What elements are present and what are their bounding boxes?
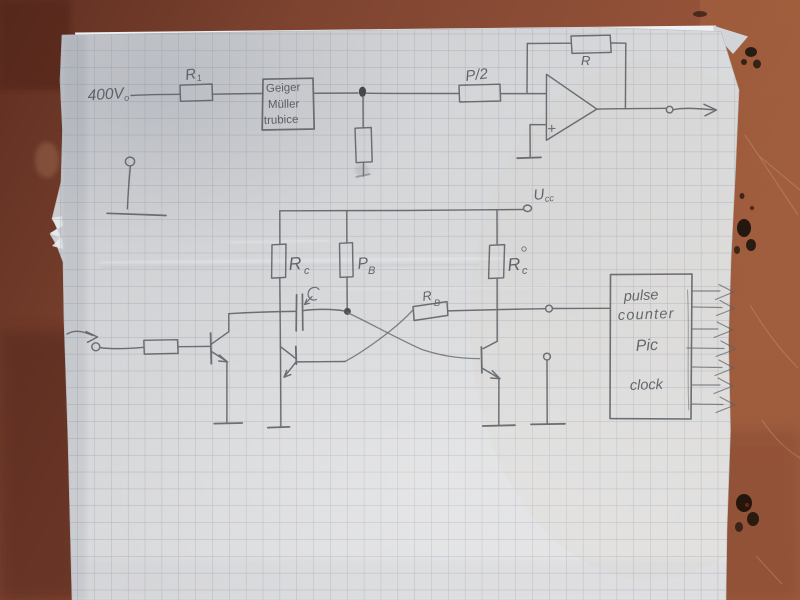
svg-text:B: B bbox=[434, 298, 440, 308]
svg-text:Müller: Müller bbox=[268, 98, 300, 111]
svg-text:pulse: pulse bbox=[622, 287, 658, 305]
svg-text:Pic: Pic bbox=[635, 337, 658, 355]
svg-text:P/2: P/2 bbox=[464, 65, 489, 85]
svg-text:c: c bbox=[522, 265, 528, 277]
svg-text:clock: clock bbox=[630, 377, 664, 394]
svg-text:B: B bbox=[368, 265, 375, 277]
svg-text:trubice: trubice bbox=[264, 114, 299, 127]
svg-text:R: R bbox=[288, 253, 302, 274]
svg-text:counter: counter bbox=[618, 306, 675, 324]
svg-text:Geiger: Geiger bbox=[266, 82, 301, 95]
svg-text:c: c bbox=[304, 265, 310, 277]
svg-text:R: R bbox=[581, 53, 590, 68]
svg-text:R: R bbox=[507, 254, 522, 275]
